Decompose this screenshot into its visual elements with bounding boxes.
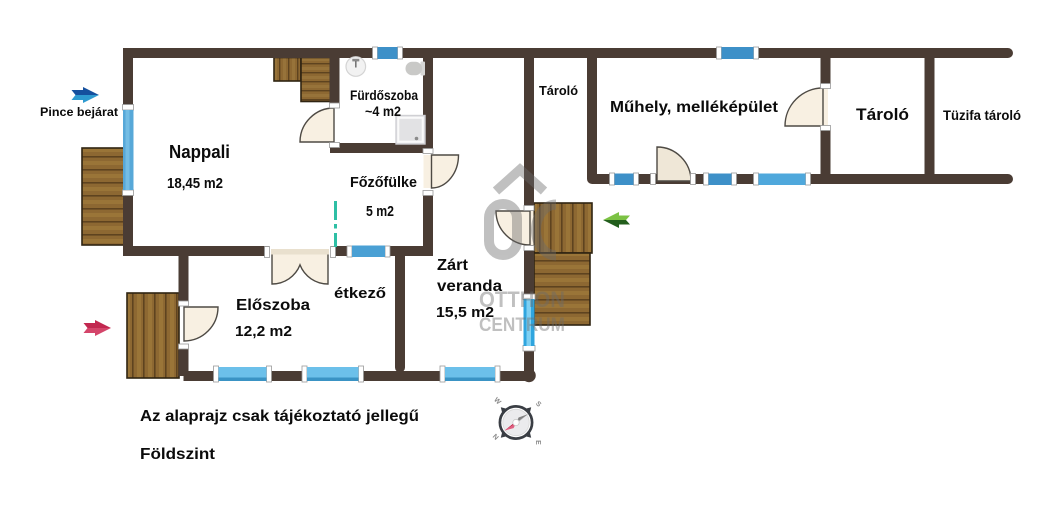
svg-text:Tüzifa tároló: Tüzifa tároló <box>943 108 1021 123</box>
svg-text:Pince bejárat: Pince bejárat <box>40 107 118 119</box>
svg-text:CENTRUM: CENTRUM <box>479 315 565 336</box>
svg-text:OTTHON: OTTHON <box>479 287 565 312</box>
svg-text:18,45 m2: 18,45 m2 <box>167 175 223 192</box>
svg-text:Az alaprajz csak tájékoztató j: Az alaprajz csak tájékoztató jellegű <box>140 408 419 425</box>
svg-text:Zárt: Zárt <box>437 257 469 274</box>
svg-text:Nappali: Nappali <box>169 141 230 162</box>
svg-text:N: N <box>491 433 500 442</box>
svg-text:Előszoba: Előszoba <box>236 297 310 314</box>
svg-text:S: S <box>534 400 542 408</box>
svg-text:Tároló: Tároló <box>856 105 909 124</box>
svg-text:5 m2: 5 m2 <box>366 203 394 220</box>
svg-text:étkező: étkező <box>334 285 386 302</box>
svg-text:Tároló: Tároló <box>539 84 578 98</box>
svg-text:Fürdőszoba: Fürdőszoba <box>350 88 418 103</box>
svg-text:12,2 m2: 12,2 m2 <box>235 323 292 340</box>
svg-text:Földszint: Földszint <box>140 446 215 463</box>
svg-text:W: W <box>492 397 502 407</box>
svg-text:~4 m2: ~4 m2 <box>365 104 401 119</box>
svg-text:E: E <box>534 440 541 445</box>
svg-text:Műhely, melléképület: Műhely, melléképület <box>610 99 779 116</box>
svg-text:Főzőfülke: Főzőfülke <box>350 174 417 191</box>
